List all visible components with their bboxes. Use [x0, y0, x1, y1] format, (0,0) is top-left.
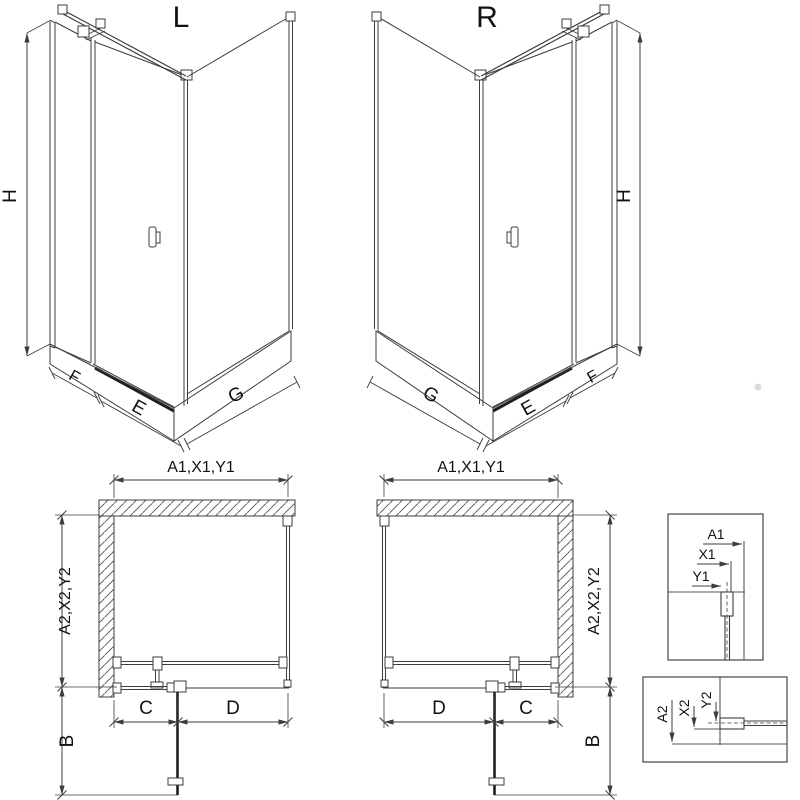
plan-right-width-label: A1,X1,Y1 — [437, 459, 505, 476]
plan-left-width-label: A1,X1,Y1 — [167, 459, 235, 476]
detail-bottom-y2-label: Y2 — [698, 691, 714, 708]
plan-left-c-label: C — [139, 698, 153, 719]
iso-right-e-label: E — [518, 396, 539, 421]
detail-top-x1-label: X1 — [698, 546, 715, 562]
iso-left-f-label: F — [66, 367, 83, 387]
iso-left-geometry — [27, 5, 300, 452]
plan-left-depth-label: A2,X2,Y2 — [57, 567, 74, 635]
iso-right-geometry — [367, 5, 640, 452]
plan-left-geometry — [55, 474, 293, 800]
plan-right-b-label: B — [583, 735, 604, 748]
detail-bottom-x2-label: X2 — [676, 699, 692, 716]
faint-dot-artifact — [755, 384, 762, 391]
plan-right-d-label: D — [432, 698, 446, 719]
shower-enclosure-diagram: L H F E G R H G E F A1,X1,Y1 A2,X2,Y2 C … — [0, 0, 800, 800]
plan-left-b-label: B — [57, 735, 78, 748]
plan-right-depth-label: A2,X2,Y2 — [586, 567, 603, 635]
plan-right-c-label: C — [519, 698, 533, 719]
plan-right-geometry — [380, 474, 618, 800]
detail-top-a1-label: A1 — [707, 526, 724, 542]
plan-right-walls — [377, 500, 573, 697]
technical-diagram-page: L H F E G R H G E F A1,X1,Y1 A2,X2,Y2 C … — [0, 0, 800, 800]
iso-right-variant-label: R — [476, 1, 498, 34]
iso-right-f-label: F — [584, 367, 601, 387]
iso-left-e-label: E — [128, 396, 149, 421]
detail-bottom-a2-label: A2 — [654, 705, 670, 722]
detail-top-y1-label: Y1 — [692, 568, 709, 584]
iso-right-height-label: H — [614, 189, 635, 203]
plan-left-d-label: D — [226, 698, 240, 719]
iso-left-variant-label: L — [173, 1, 190, 34]
plan-left-walls — [99, 500, 295, 697]
iso-left-height-label: H — [0, 189, 21, 203]
